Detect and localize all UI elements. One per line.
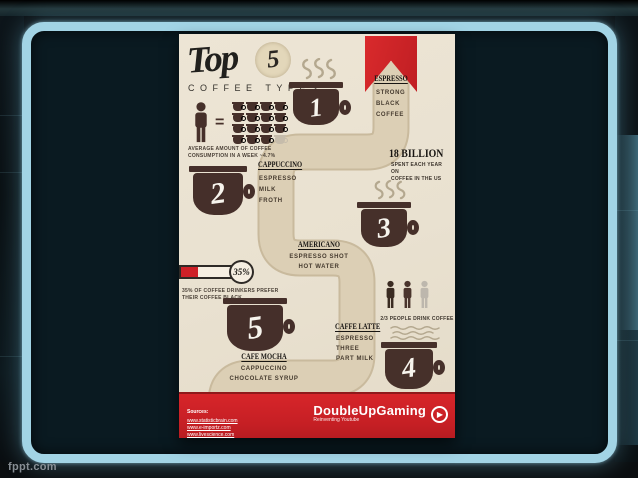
coffee-cup-5: 5 bbox=[227, 298, 283, 351]
cups-grid-icon bbox=[233, 102, 288, 145]
mini-cup-icon bbox=[233, 104, 243, 111]
play-icon: ▶ bbox=[431, 406, 448, 423]
mini-cup-icon-faded bbox=[275, 137, 285, 144]
cup-handle bbox=[433, 360, 445, 375]
mini-cup-icon bbox=[247, 104, 257, 111]
cup-rim bbox=[381, 342, 437, 348]
steam-waves-icon bbox=[389, 326, 441, 340]
thermometer-gauge: 35% bbox=[179, 260, 257, 286]
person-icon bbox=[401, 278, 414, 312]
rank-number: 3 bbox=[359, 210, 409, 248]
title-script: Top bbox=[186, 36, 239, 82]
caffe-latte-label: CAFFE LATTE bbox=[335, 322, 380, 331]
fppt-watermark[interactable]: fppt.com bbox=[8, 461, 57, 473]
steam-icon bbox=[371, 180, 409, 200]
brand-block: DoubleUpGaming Reinventing Youtube ▶ bbox=[313, 405, 448, 423]
rank-number: 2 bbox=[191, 174, 245, 215]
bg-seam bbox=[615, 340, 638, 341]
cup-rim bbox=[289, 82, 343, 88]
steam-icon bbox=[299, 58, 339, 80]
cup-handle bbox=[243, 184, 255, 199]
cup-rim bbox=[189, 166, 247, 172]
coffee-cup-3: 3 bbox=[361, 202, 407, 247]
cup-handle bbox=[407, 220, 419, 235]
cup-handle bbox=[283, 319, 295, 334]
bg-seam bbox=[615, 210, 638, 211]
mini-cup-icon bbox=[233, 115, 243, 122]
slide-canvas: Top 5 COFFEE TYPES = bbox=[0, 0, 638, 478]
cappuccino-label: CAPPUCCINO bbox=[258, 160, 302, 169]
bg-left-strip bbox=[0, 16, 24, 462]
bg-seam bbox=[0, 356, 24, 357]
source-link: www.statisticbrain.com bbox=[187, 418, 238, 425]
brand-tagline: Reinventing Youtube bbox=[313, 417, 426, 423]
mini-cup-icon bbox=[247, 115, 257, 122]
mini-cup-icon bbox=[275, 126, 285, 133]
coffee-cup-1: 1 bbox=[293, 82, 339, 125]
mini-cup-icon bbox=[261, 115, 271, 122]
rank-number: 1 bbox=[291, 90, 341, 126]
cup-rim bbox=[223, 298, 287, 304]
espresso-desc: STRONG BLACK COFFEE bbox=[376, 88, 405, 121]
cup-body: 2 bbox=[193, 173, 243, 215]
gauge-fill bbox=[181, 267, 198, 277]
person-icon-faded bbox=[418, 278, 431, 312]
cafe-mocha-label: CAFE MOCHA bbox=[219, 352, 309, 361]
rank-number: 5 bbox=[225, 305, 286, 349]
mini-cup-icon bbox=[261, 104, 271, 111]
mini-cup-icon bbox=[233, 126, 243, 133]
bg-glow bbox=[616, 135, 638, 330]
brand-text: DoubleUpGaming Reinventing Youtube bbox=[313, 405, 426, 423]
source-link: www.livescience.com bbox=[187, 432, 238, 438]
mini-cup-icon bbox=[275, 104, 285, 111]
consumption-caption: AVERAGE AMOUNT OF COFFEE CONSUMPTION IN … bbox=[188, 146, 300, 160]
cafe-mocha-desc: CAPPUCCINO CHOCOLATE SYRUP bbox=[204, 364, 324, 384]
cup-handle bbox=[339, 100, 351, 115]
person-icon bbox=[191, 102, 211, 144]
gauge-bulb: 35% bbox=[229, 260, 254, 284]
poster-footer: Sources: www.statisticbrain.com www.e-im… bbox=[179, 392, 455, 438]
mini-cup-icon bbox=[247, 126, 257, 133]
drinkers-caption: 2/3 PEOPLE DRINK COFFEE bbox=[377, 316, 455, 323]
bg-top-band bbox=[0, 0, 638, 16]
gauge-value: 35% bbox=[233, 267, 250, 277]
title-number: 5 bbox=[265, 45, 280, 74]
bg-seam bbox=[0, 172, 24, 173]
cappuccino-desc: ESPRESSO MILK FROTH bbox=[259, 174, 297, 207]
bg-bottom-band bbox=[0, 462, 638, 478]
people-icons bbox=[384, 278, 431, 312]
person-icon bbox=[384, 278, 397, 312]
cup-body: 4 bbox=[385, 349, 433, 389]
mini-cup-icon bbox=[261, 137, 271, 144]
infographic-poster: Top 5 COFFEE TYPES = bbox=[179, 34, 455, 438]
title-number-circle: 5 bbox=[255, 42, 291, 78]
mini-cup-icon bbox=[275, 115, 285, 122]
rank-number: 4 bbox=[383, 350, 435, 388]
bg-seam bbox=[0, 115, 24, 116]
coffee-cup-4: 4 bbox=[385, 342, 433, 389]
sources-block: Sources: www.statisticbrain.com www.e-im… bbox=[187, 400, 238, 438]
caffe-latte-desc: ESPRESSO THREE PART MILK bbox=[336, 334, 374, 364]
cup-body: 3 bbox=[361, 209, 407, 247]
sources-label: Sources: bbox=[187, 409, 208, 415]
espresso-label: ESPRESSO bbox=[370, 74, 413, 83]
cup-rim bbox=[357, 202, 411, 208]
brand-name: DoubleUpGaming bbox=[313, 405, 426, 417]
cup-body: 5 bbox=[227, 305, 283, 351]
mini-cup-icon bbox=[247, 137, 257, 144]
mini-cup-icon bbox=[261, 126, 271, 133]
mini-cup-icon bbox=[233, 137, 243, 144]
equals-sign: = bbox=[215, 114, 224, 132]
americano-label: AMERICANO bbox=[283, 240, 355, 249]
americano-desc: ESPRESSO SHOT HOT WATER bbox=[275, 252, 363, 272]
bg-glow bbox=[616, 330, 638, 445]
source-link: www.e-importz.com bbox=[187, 425, 238, 432]
cup-body: 1 bbox=[293, 89, 339, 125]
coffee-cup-2: 2 bbox=[193, 166, 243, 215]
billion-value: 18 BILLION bbox=[389, 146, 443, 161]
